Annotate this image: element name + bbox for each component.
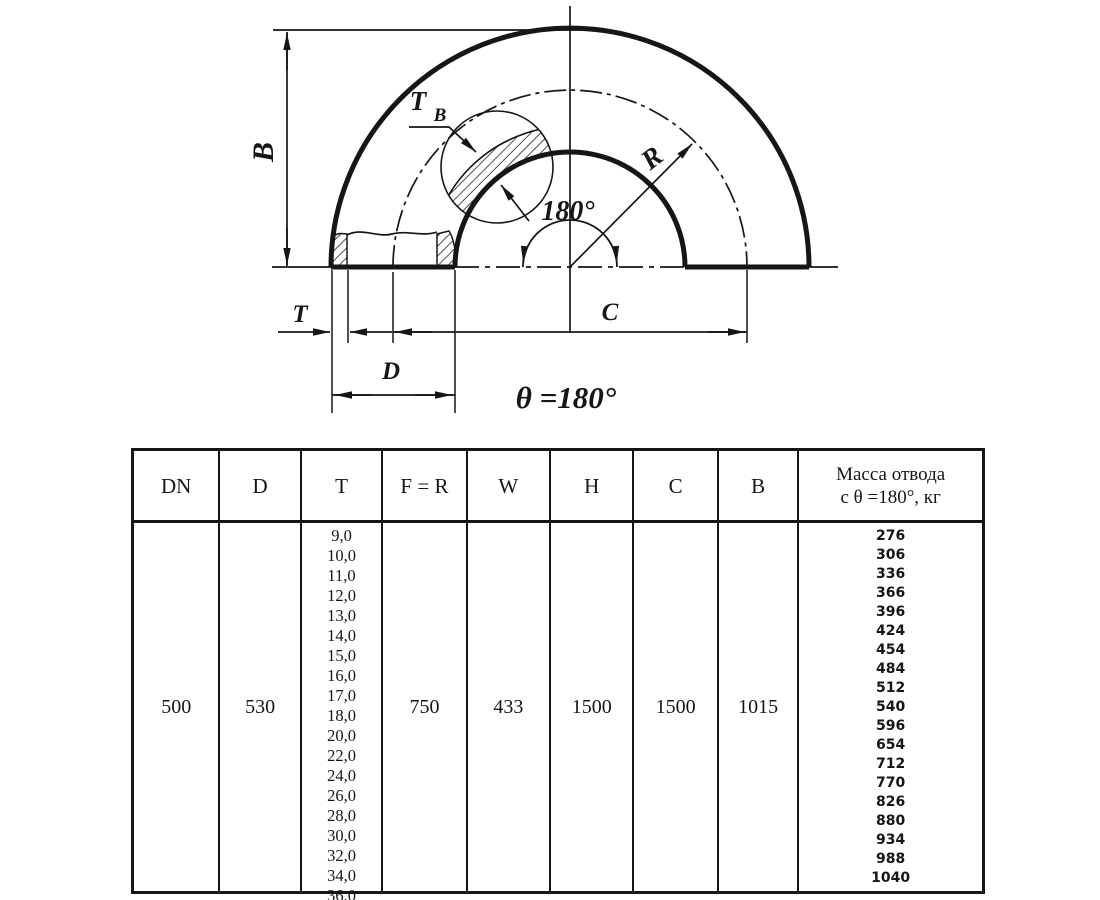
mass-header-line1: Масса отвода	[836, 463, 945, 486]
mass-value: 512	[799, 678, 982, 697]
t-value: 12,0	[302, 586, 381, 606]
t-value: 30,0	[302, 826, 381, 846]
angle-arrow-left	[523, 247, 524, 263]
col-d: D 530	[220, 451, 301, 891]
mass-value: 934	[799, 831, 982, 850]
col-t: T 9,010,011,012,013,014,015,016,017,018,…	[302, 451, 383, 891]
t-value: 32,0	[302, 846, 381, 866]
mass-value: 366	[799, 583, 982, 602]
col-header-w: W	[468, 451, 549, 523]
break-wavy-line	[347, 232, 437, 235]
mass-value: 306	[799, 545, 982, 564]
right-wall-section	[437, 231, 457, 266]
t-value: 15,0	[302, 646, 381, 666]
mass-value: 484	[799, 659, 982, 678]
angle-arrow-right	[616, 247, 617, 263]
t-value: 17,0	[302, 686, 381, 706]
cell-h: 1500	[551, 523, 632, 891]
left-wall-section	[332, 234, 347, 267]
col-header-t: T	[302, 451, 381, 523]
t-value: 18,0	[302, 706, 381, 726]
t-value: 36,0	[302, 886, 381, 900]
mass-value: 396	[799, 602, 982, 621]
b-dim-label: B	[247, 142, 280, 163]
cell-fr: 750	[383, 523, 465, 891]
t-value: 34,0	[302, 866, 381, 886]
pipe-bend-drawing: B T D C R 180° θ =180° T B	[0, 0, 1100, 446]
mass-value: 424	[799, 621, 982, 640]
angle-label: 180°	[541, 196, 594, 227]
t-value: 16,0	[302, 666, 381, 686]
cell-c: 1500	[634, 523, 716, 891]
wall-thickness-label: T B	[410, 86, 447, 126]
col-header-h: H	[551, 451, 632, 523]
mass-value: 276	[799, 526, 982, 545]
mass-value: 770	[799, 774, 982, 793]
mass-value: 988	[799, 850, 982, 869]
t-value: 14,0	[302, 626, 381, 646]
col-dn: DN 500	[134, 451, 220, 891]
tb-counter-arrow	[501, 185, 529, 221]
col-header-mass: Масса отвода с θ =180°, кг	[799, 451, 982, 523]
col-header-d: D	[220, 451, 299, 523]
tb-leader-arrow	[409, 127, 476, 152]
mass-value: 336	[799, 564, 982, 583]
theta-label: θ =180°	[516, 380, 617, 415]
col-h: H 1500	[551, 451, 634, 891]
d-dim-label: D	[381, 358, 400, 385]
col-b: B 1015	[719, 451, 799, 891]
col-header-dn: DN	[134, 451, 218, 523]
t-value: 20,0	[302, 726, 381, 746]
t-value: 11,0	[302, 566, 381, 586]
cell-mass-list: 2763063363663964244544845125405966547127…	[799, 523, 982, 891]
mass-value: 880	[799, 812, 982, 831]
mass-value: 596	[799, 716, 982, 735]
mass-header-line2: с θ =180°, кг	[840, 486, 940, 509]
col-header-fr: F = R	[383, 451, 465, 523]
t-dim-label: T	[292, 301, 309, 328]
engineering-drawing-page: B T D C R 180° θ =180° T B DN 500 D 530 …	[0, 0, 1100, 900]
dimension-table: DN 500 D 530 T 9,010,011,012,013,014,015…	[131, 448, 985, 894]
mass-value: 654	[799, 736, 982, 755]
t-value: 26,0	[302, 786, 381, 806]
cell-d: 530	[220, 523, 299, 891]
t-value: 28,0	[302, 806, 381, 826]
col-header-c: C	[634, 451, 716, 523]
t-value: 24,0	[302, 766, 381, 786]
cell-t-list: 9,010,011,012,013,014,015,016,017,018,02…	[302, 523, 381, 900]
col-fr: F = R 750	[383, 451, 467, 891]
t-value: 13,0	[302, 606, 381, 626]
col-c: C 1500	[634, 451, 718, 891]
cell-w: 433	[468, 523, 549, 891]
mass-value: 454	[799, 640, 982, 659]
cell-b: 1015	[719, 523, 797, 891]
col-mass: Масса отвода с θ =180°, кг 2763063363663…	[799, 451, 982, 891]
col-header-b: B	[719, 451, 797, 523]
mass-value: 826	[799, 793, 982, 812]
t-value: 22,0	[302, 746, 381, 766]
mass-value: 712	[799, 755, 982, 774]
mass-value: 1040	[799, 869, 982, 888]
mass-value: 540	[799, 697, 982, 716]
t-value: 10,0	[302, 546, 381, 566]
c-dim-label: C	[602, 299, 619, 326]
cell-dn: 500	[134, 523, 218, 891]
t-value: 9,0	[302, 526, 381, 546]
col-w: W 433	[468, 451, 551, 891]
